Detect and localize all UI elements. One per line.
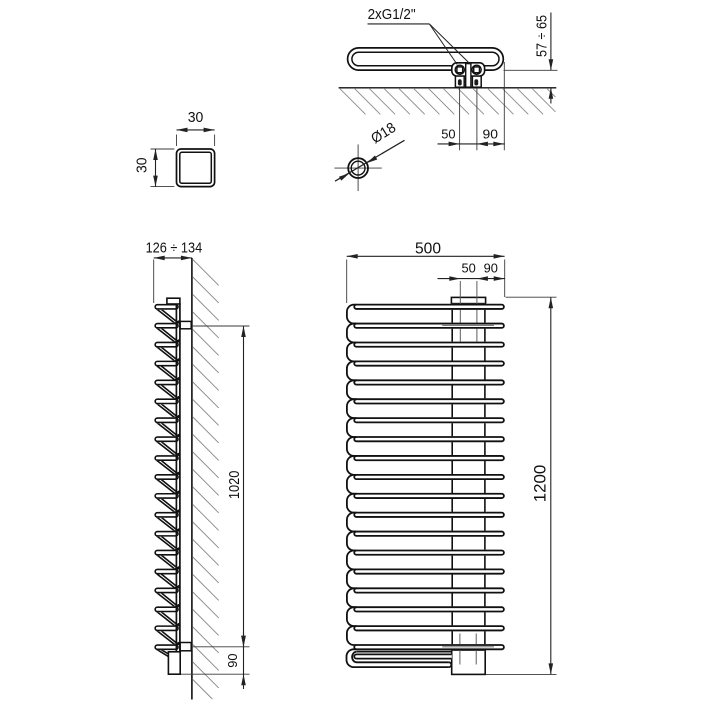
- svg-text:90: 90: [484, 260, 498, 275]
- svg-text:57 ÷ 65: 57 ÷ 65: [533, 15, 550, 57]
- svg-text:2xG1/2": 2xG1/2": [368, 6, 416, 23]
- svg-text:1020: 1020: [226, 471, 243, 499]
- svg-text:50: 50: [441, 126, 455, 141]
- svg-text:126 ÷ 134: 126 ÷ 134: [146, 240, 203, 257]
- svg-text:30: 30: [134, 157, 150, 173]
- svg-text:90: 90: [483, 126, 499, 141]
- svg-text:50: 50: [461, 260, 475, 275]
- svg-text:500: 500: [415, 241, 441, 258]
- svg-text:1200: 1200: [530, 465, 549, 503]
- svg-text:Ø18: Ø18: [369, 120, 400, 147]
- svg-text:30: 30: [188, 110, 204, 126]
- svg-text:90: 90: [225, 653, 240, 667]
